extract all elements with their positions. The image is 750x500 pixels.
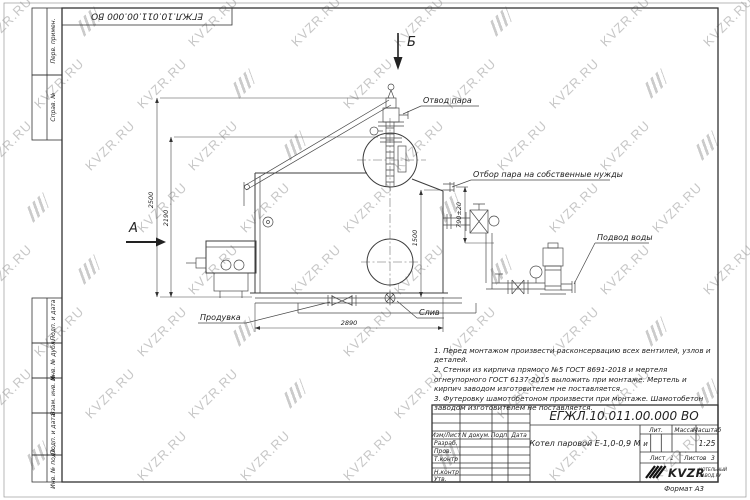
callout-steam-takeoff: Отбор пара на собственные нужды xyxy=(452,170,623,187)
massa-header: Масса xyxy=(674,427,693,434)
svg-text:790±20: 790±20 xyxy=(455,202,463,228)
view-arrow-a: А xyxy=(126,221,166,247)
margin-graphs: Перв. примен. Справ. № Подп. и дата Инв.… xyxy=(32,8,62,489)
dimensions: 2500 2190 1500 790±20 xyxy=(147,98,494,332)
listov-label: Листов xyxy=(683,455,707,462)
company-logo: KVZR xyxy=(646,466,705,480)
col-izm-list: Изм/Лист xyxy=(431,432,461,439)
callout-blowdown: Продувка xyxy=(198,302,330,323)
callout-drain: Слив xyxy=(397,301,444,318)
doc-number-top-box: ЕГЖЛ.10.011.00.000 ВО xyxy=(62,8,232,25)
svg-text:Отвод пара: Отвод пара xyxy=(423,96,472,105)
lifting-jib xyxy=(244,100,391,206)
row-n-kontr: Н.контр xyxy=(434,469,459,476)
svg-text:Продувка: Продувка xyxy=(200,313,241,322)
svg-text:2190: 2190 xyxy=(162,210,170,227)
svg-text:Подвод воды: Подвод воды xyxy=(597,233,653,242)
callout-steam-outlet: Отвод пара xyxy=(403,96,479,114)
dim-length-body: 2890 xyxy=(255,297,443,332)
boiler-view xyxy=(186,84,575,313)
technical-notes: 1. Перед монтажом произвести расконсерва… xyxy=(434,346,716,414)
svg-text:1500: 1500 xyxy=(411,230,419,247)
row-utv: Утв. xyxy=(434,476,447,483)
note-line: 3. Футеровку шамотобетоном произвести пр… xyxy=(434,394,716,412)
col-podp: Подп. xyxy=(491,432,509,439)
dim-height-body: 2190 xyxy=(162,137,378,297)
col-n-dokum: N докум. xyxy=(462,432,490,439)
feed-pump xyxy=(540,243,575,294)
callout-water-inlet: Подвод воды xyxy=(574,233,653,284)
product-name: Котел паровой Е-1,0-0,9 М xyxy=(530,439,641,448)
cad-drawing: Перв. примен. Справ. № Подп. и дата Инв.… xyxy=(0,0,750,500)
callouts: Отвод пара Отбор пара на собственные нуж… xyxy=(198,96,653,323)
listov-value: 3 xyxy=(711,455,715,462)
doc-number-top: ЕГЖЛ.10.011.00.000 ВО xyxy=(91,11,203,21)
row-prov: Пров. xyxy=(434,448,452,455)
margin-label: Подп. и дата xyxy=(50,299,57,340)
list-value: 1 xyxy=(670,455,674,462)
dim-height-steam: 1500 xyxy=(411,190,443,297)
margin-label: Инв. № подл. xyxy=(50,447,57,488)
svg-text:Слив: Слив xyxy=(419,308,440,317)
burner xyxy=(186,241,256,298)
view-arrow-b: Б xyxy=(394,33,417,70)
svg-text:А: А xyxy=(128,221,138,236)
margin-label: Инв. № дубл. xyxy=(50,339,57,380)
svg-text:2500: 2500 xyxy=(147,192,155,209)
lit-value: и xyxy=(643,440,648,448)
row-t-kontr: Т.контр xyxy=(434,456,458,463)
company-tagline-2: ЗАВОД.РУ xyxy=(699,473,721,479)
kvzr-logo-icon xyxy=(646,466,666,478)
col-data: Дата xyxy=(510,432,527,439)
note-line: 2. Стенки из кирпича прямого №5 ГОСТ 869… xyxy=(434,365,716,393)
blowdown-valve xyxy=(328,295,356,306)
title-block: ЕГЖЛ.10.011.00.000 ВО Изм/Лист N докум. … xyxy=(431,405,727,483)
lit-header: Лит. xyxy=(648,427,663,434)
margin-label: Справ. № xyxy=(50,92,57,121)
drawing-sheet: KVZR.RUKVZR.RUKVZR.RUKVZR.RUKVZR.RUKVZR.… xyxy=(0,0,750,500)
dim-height-overall: 2500 xyxy=(147,98,390,297)
margin-label: Перв. примен. xyxy=(50,18,57,63)
margin-label: Взам. инв. № xyxy=(50,375,57,416)
list-label: Лист xyxy=(649,455,666,462)
format-label: Формат А3 xyxy=(664,485,704,493)
boiler-body xyxy=(250,133,448,293)
svg-text:Отбор пара на собственные нужд: Отбор пара на собственные нужды xyxy=(473,170,623,179)
row-razrab: Разраб. xyxy=(434,440,458,447)
svg-text:2890: 2890 xyxy=(341,319,358,327)
masshtab-value: 1:25 xyxy=(699,439,716,448)
svg-text:Б: Б xyxy=(407,35,416,50)
company-tagline-1: КОТЕЛЬНЫЙ xyxy=(699,466,728,473)
masshtab-header: Масштаб xyxy=(693,427,722,434)
note-line: 1. Перед монтажом произвести расконсерва… xyxy=(434,346,716,364)
